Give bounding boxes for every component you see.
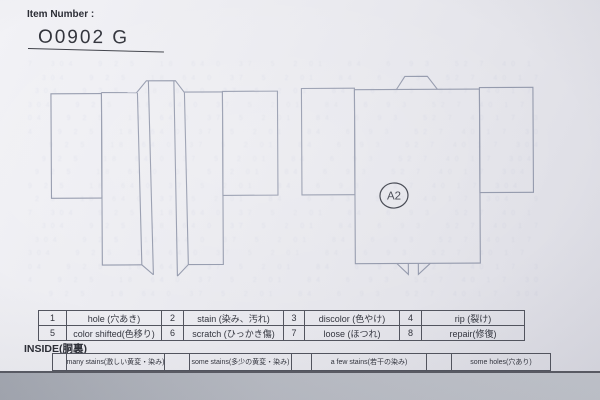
legend-code-cell: 1 bbox=[39, 311, 66, 325]
legend-code-cell: 5 bbox=[39, 325, 66, 340]
front-collar-inner-left bbox=[148, 81, 153, 275]
back-right-sleeve bbox=[479, 87, 533, 192]
back-hem-flap-left bbox=[397, 263, 409, 274]
legend-code-cell: 7 bbox=[283, 325, 304, 340]
front-body-right bbox=[187, 92, 223, 265]
legend-label-cell: stain (染み、汚れ) bbox=[183, 311, 283, 325]
front-collar-outer-right bbox=[176, 93, 188, 277]
legend-code-cell: 3 bbox=[283, 311, 304, 325]
front-collar-inner-right bbox=[174, 81, 178, 277]
kimono-back-outline bbox=[301, 76, 534, 275]
legend-label-cell: hole (穴あき) bbox=[66, 311, 161, 325]
inside-option-cell: a few stains(若干の染み) bbox=[311, 354, 426, 370]
inside-option-cell: some stains(多少の黄変・染み) bbox=[189, 354, 291, 370]
kimono-front-outline bbox=[51, 80, 279, 277]
legend-code-cell: 4 bbox=[399, 311, 421, 325]
item-number-value: O0902 G bbox=[38, 27, 129, 50]
legend-label-cell: discolor (色やけ) bbox=[304, 311, 399, 325]
inside-mark-cell bbox=[53, 354, 66, 370]
back-collar bbox=[396, 76, 437, 89]
legend-label-cell: repair(修復) bbox=[421, 325, 524, 340]
front-left-sleeve bbox=[51, 94, 102, 199]
inside-condition-table: many stains(激しい黄変・染み) some stains(多少の黄変・… bbox=[52, 353, 551, 371]
inside-option-cell: some holes(穴あり) bbox=[451, 354, 550, 370]
item-number-label: Item Number : bbox=[27, 9, 94, 20]
legend-code-cell: 8 bbox=[399, 325, 421, 340]
photographed-condition-sheet: 7 304 9 2 5 18 64 0 37 5 2 01 84 6 9 3 5… bbox=[0, 0, 600, 400]
back-hem-flap-right bbox=[418, 263, 430, 274]
legend-label-cell: loose (ほつれ) bbox=[304, 325, 399, 340]
legend-code-cell: 6 bbox=[161, 325, 183, 340]
back-left-sleeve bbox=[301, 88, 355, 195]
legend-code-cell: 2 bbox=[161, 311, 183, 325]
inside-mark-cell bbox=[164, 354, 189, 370]
legend-label-cell: scratch (ひっかき傷) bbox=[183, 325, 283, 340]
inside-mark-cell bbox=[426, 354, 451, 370]
front-body-left bbox=[101, 92, 141, 265]
front-right-sleeve bbox=[222, 91, 278, 195]
inside-option-cell: many stains(激しい黄変・染み) bbox=[66, 354, 164, 370]
annotation-text: A2 bbox=[387, 190, 401, 202]
front-neckline bbox=[136, 81, 184, 93]
condition-annotation: A2 bbox=[379, 182, 410, 210]
legend-label-cell: color shifted(色移り) bbox=[66, 325, 161, 340]
legend-label-cell: rip (裂け) bbox=[421, 311, 524, 325]
back-body bbox=[354, 89, 480, 264]
condition-legend-table: 1 hole (穴あき) 2 stain (染み、汚れ) 3 discolor … bbox=[38, 310, 525, 341]
inside-mark-cell bbox=[291, 354, 311, 370]
